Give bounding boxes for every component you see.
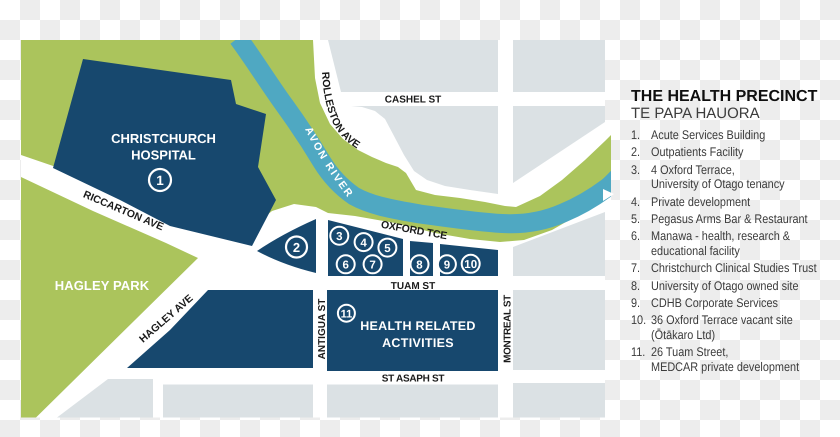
svg-text:9: 9	[444, 260, 450, 272]
svg-text:4: 4	[360, 237, 367, 249]
svg-text:ANTIGUA ST: ANTIGUA ST	[317, 299, 328, 360]
svg-text:6: 6	[342, 260, 348, 272]
svg-text:HAGLEY PARK: HAGLEY PARK	[55, 278, 150, 293]
svg-text:HEALTH RELATED: HEALTH RELATED	[360, 319, 476, 333]
svg-text:11: 11	[341, 308, 353, 320]
svg-text:7: 7	[369, 260, 375, 272]
svg-text:TUAM ST: TUAM ST	[391, 281, 435, 292]
svg-text:5: 5	[384, 243, 391, 255]
svg-text:MONTREAL ST: MONTREAL ST	[503, 295, 514, 363]
svg-text:3: 3	[336, 231, 342, 243]
svg-text:2: 2	[293, 240, 300, 255]
svg-text:HOSPITAL: HOSPITAL	[131, 148, 196, 163]
svg-text:1: 1	[156, 173, 164, 188]
svg-text:CASHEL ST: CASHEL ST	[385, 95, 442, 106]
svg-text:CHRISTCHURCH: CHRISTCHURCH	[111, 131, 216, 146]
svg-text:8: 8	[416, 260, 423, 272]
svg-text:10: 10	[464, 259, 477, 271]
svg-text:ACTIVITIES: ACTIVITIES	[382, 336, 454, 350]
svg-text:ST ASAPH ST: ST ASAPH ST	[382, 374, 445, 385]
